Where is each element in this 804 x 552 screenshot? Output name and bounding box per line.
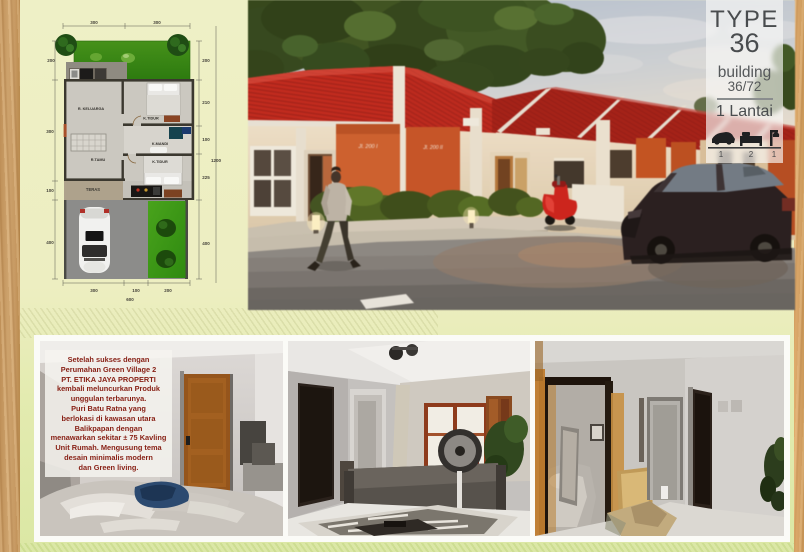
svg-text:R. KELUARGA: R. KELUARGA [78, 107, 105, 111]
svg-text:210: 210 [202, 100, 210, 105]
svg-text:100: 100 [132, 288, 140, 293]
svg-text:R.TAMU: R.TAMU [91, 158, 106, 162]
svg-text:K.MANDI: K.MANDI [152, 142, 168, 146]
svg-text:400: 400 [202, 241, 210, 246]
svg-text:300: 300 [46, 129, 54, 134]
svg-text:K.TIDUR: K.TIDUR [152, 160, 168, 164]
svg-text:TERAS: TERAS [86, 187, 100, 192]
svg-text:1: 1 [772, 150, 777, 159]
svg-text:300: 300 [153, 20, 161, 25]
svg-text:1200: 1200 [211, 158, 222, 163]
svg-text:K.TIDUR: K.TIDUR [143, 117, 159, 121]
svg-text:300: 300 [90, 288, 98, 293]
svg-text:200: 200 [202, 58, 210, 63]
svg-text:2: 2 [749, 150, 754, 159]
svg-text:1: 1 [719, 150, 724, 159]
svg-text:400: 400 [46, 240, 54, 245]
svg-text:100: 100 [46, 188, 54, 193]
svg-text:100: 100 [202, 137, 210, 142]
svg-text:200: 200 [164, 288, 172, 293]
svg-text:225: 225 [202, 175, 210, 180]
svg-text:300: 300 [90, 20, 98, 25]
svg-text:200: 200 [47, 58, 55, 63]
svg-text:600: 600 [126, 297, 134, 302]
